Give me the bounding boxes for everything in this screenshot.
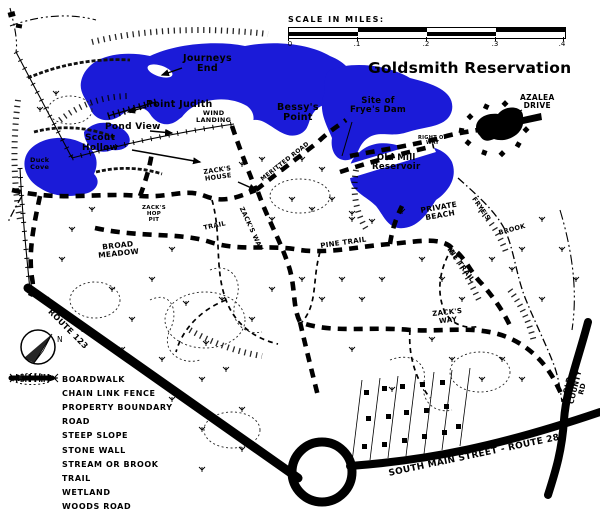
legend-item-stone-wall: STONE WALL bbox=[8, 443, 208, 457]
compass-north-label: N bbox=[57, 335, 63, 344]
map-title: Goldsmith Reservation bbox=[368, 59, 571, 77]
scale-bar-graphic bbox=[288, 27, 566, 39]
scale-tick-labels: 0 .1 .2 .3 .4 bbox=[288, 40, 566, 52]
old-county-road bbox=[548, 322, 588, 495]
legend-item-road: ROAD bbox=[8, 415, 208, 429]
scale-tick-0: 0 bbox=[288, 40, 292, 48]
legend-label: STEEP SLOPE bbox=[62, 431, 128, 440]
fryes-brook-stream bbox=[458, 178, 562, 402]
legend-label: WETLAND bbox=[62, 488, 111, 497]
goldsmith-reservation-map: N Goldsmith Reservation SCALE IN MILES: … bbox=[0, 0, 600, 516]
legend-label: STONE WALL bbox=[62, 446, 126, 455]
azalea-cul-de-sac bbox=[476, 108, 542, 141]
legend-item-chain-link-fence: CHAIN LINK FENCE bbox=[8, 386, 208, 400]
legend-label: CHAIN LINK FENCE bbox=[62, 389, 156, 398]
duck-cove-shape bbox=[24, 138, 97, 196]
trailhead-marker-2 bbox=[16, 24, 23, 29]
legend-label: TRAIL bbox=[62, 474, 91, 483]
scale-tick-1: .1 bbox=[354, 40, 361, 48]
scale-bar: SCALE IN MILES: 0 .1 .2 .3 .4 bbox=[288, 15, 566, 52]
lot-lines bbox=[352, 368, 470, 462]
legend-label: ROAD bbox=[62, 417, 90, 426]
rotary bbox=[292, 442, 352, 502]
legend-item-steep-slope: STEEP SLOPE bbox=[8, 429, 208, 443]
legend-item-woods-road: WOODS ROAD bbox=[8, 500, 208, 514]
trailhead-marker bbox=[8, 11, 16, 18]
compass-rose: N bbox=[21, 330, 63, 364]
legend: BOARDWALK CHAIN LINK FENCE PROPERTY BOUN… bbox=[8, 372, 208, 514]
legend-item-wetland: WETLAND bbox=[8, 486, 208, 500]
legend-label: STREAM OR BROOK bbox=[62, 460, 159, 469]
legend-label: PROPERTY BOUNDARY bbox=[62, 403, 173, 412]
legend-item-trail: TRAIL bbox=[8, 471, 208, 485]
scale-title: SCALE IN MILES: bbox=[288, 15, 566, 24]
scale-tick-2: .2 bbox=[423, 40, 430, 48]
legend-label: BOARDWALK bbox=[62, 375, 125, 384]
legend-item-stream-or-brook: STREAM OR BROOK bbox=[8, 457, 208, 471]
scale-tick-4: .4 bbox=[559, 40, 566, 48]
legend-label: WOODS ROAD bbox=[62, 502, 131, 511]
legend-item-property-boundary: PROPERTY BOUNDARY bbox=[8, 400, 208, 414]
scale-tick-3: .3 bbox=[492, 40, 499, 48]
